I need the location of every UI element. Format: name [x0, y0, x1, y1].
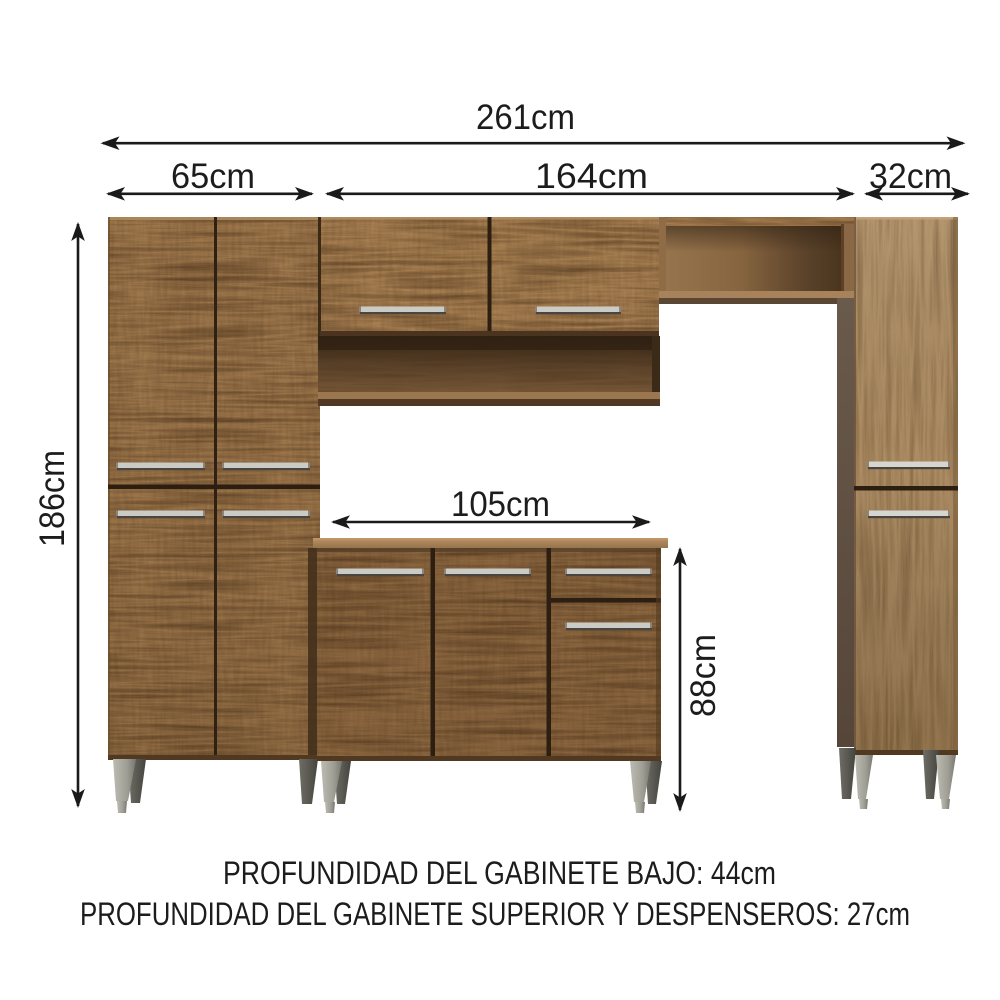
svg-text:PROFUNDIDAD DEL GABINETE BAJO:: PROFUNDIDAD DEL GABINETE BAJO: 44cm [223, 855, 776, 891]
svg-text:186cm: 186cm [33, 450, 72, 547]
svg-text:261cm: 261cm [476, 98, 575, 137]
svg-text:164cm: 164cm [535, 157, 648, 196]
svg-text:65cm: 65cm [171, 157, 255, 196]
svg-text:32cm: 32cm [869, 157, 952, 196]
svg-text:88cm: 88cm [684, 634, 723, 717]
svg-text:105cm: 105cm [451, 485, 550, 524]
svg-text:PROFUNDIDAD DEL GABINETE SUPER: PROFUNDIDAD DEL GABINETE SUPERIOR Y DESP… [80, 896, 910, 932]
